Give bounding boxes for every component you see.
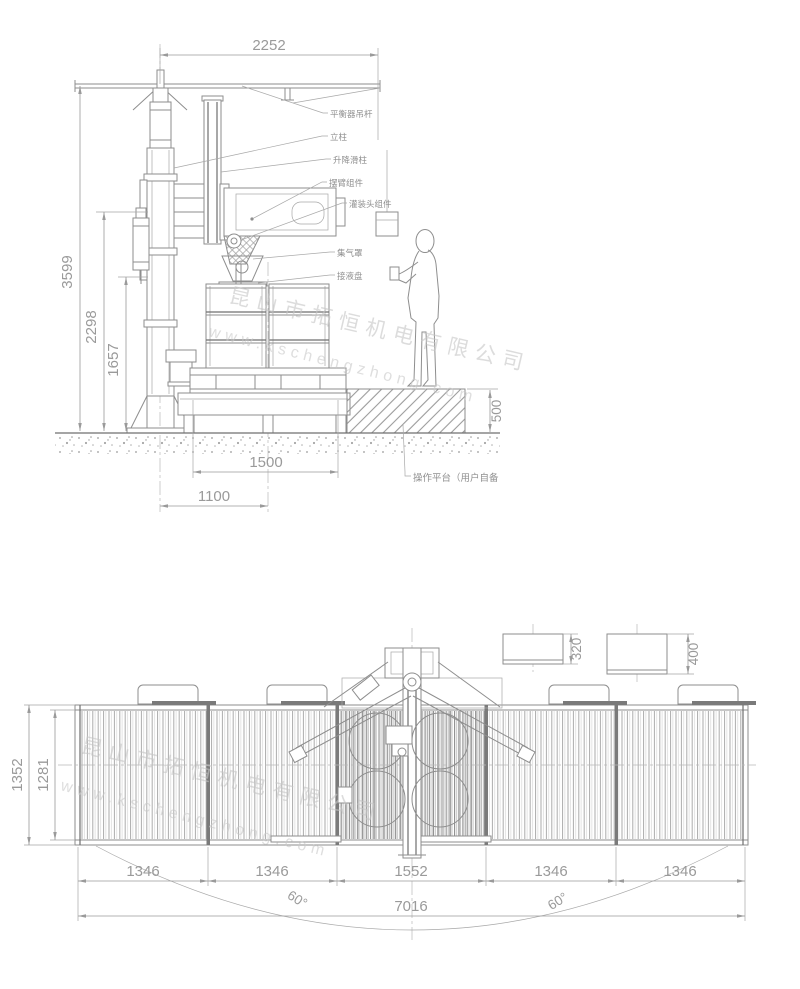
swing-pivot: [403, 673, 421, 691]
label-swing-arm: 摆臂组件: [329, 178, 364, 188]
dim-drum-offset-a: 320: [569, 638, 584, 661]
segment-bar: [615, 705, 619, 845]
page: 2252 3599 2298 1657 1500 1100 500 平衡器吊杆: [0, 0, 800, 989]
base-gusset-left: [131, 396, 147, 428]
label-gas-hood: 集气罩: [337, 248, 363, 258]
arm-attachment: [352, 675, 379, 700]
hanging-component: [376, 150, 398, 236]
dim-pallet-width: 1500: [249, 454, 282, 471]
dim-conveyor-width: 1352: [9, 758, 26, 791]
cad-drawing: 2252 3599 2298 1657 1500 1100 500 平衡器吊杆: [0, 0, 800, 989]
floor-conveyor-frame: [178, 393, 350, 433]
dim-drum-offset-b: 400: [686, 643, 701, 666]
dim-platform-height: 500: [489, 400, 504, 423]
dim-segment-4: 1346: [534, 863, 567, 880]
dim-swing-right: 60°: [545, 889, 570, 913]
label-column: 立柱: [330, 132, 348, 142]
dim-hook-height: 2298: [83, 310, 100, 343]
drum-station-b: 400: [607, 624, 701, 682]
drum-station-a: 320: [503, 624, 584, 672]
balancer-beam: [75, 80, 380, 110]
operator-figure: [390, 230, 439, 390]
dim-segment-3: 1552: [394, 863, 427, 880]
dim-swing-left: 60°: [285, 887, 310, 911]
pallet-stations: [138, 685, 756, 705]
dim-segment-1: 1346: [126, 863, 159, 880]
arm-bracket: [174, 184, 204, 238]
ground-texture: [55, 434, 500, 454]
dim-column-offset: 1100: [198, 488, 230, 505]
label-operator-platform: 操作平台（用户自备: [413, 472, 499, 484]
dim-head-height: 1657: [105, 343, 122, 376]
dim-total-height: 3599: [59, 255, 76, 288]
filling-head-plan: [386, 726, 412, 744]
label-lift-slide: 升降滑柱: [333, 155, 368, 165]
label-balancer-rod: 平衡器吊杆: [330, 109, 373, 119]
balancer-cylinder: [133, 180, 149, 284]
control-pendant: [390, 267, 399, 280]
beam-trolley-hook: [281, 88, 294, 100]
dim-segment-5: 1346: [663, 863, 696, 880]
dim-total-length: 7016: [394, 898, 427, 915]
label-filling-head: 灌装头组件: [349, 199, 392, 209]
dim-beam-span: 2252: [252, 37, 285, 54]
base-plate: [127, 428, 191, 433]
swing-arm-box: [220, 184, 345, 240]
plan-view: 320 400: [9, 624, 756, 940]
label-drip-tray: 接液盘: [337, 271, 363, 281]
dim-segment-2: 1346: [255, 863, 288, 880]
elevation-view: 2252 3599 2298 1657 1500 1100 500 平衡器吊杆: [55, 37, 532, 512]
pallet: [190, 368, 346, 393]
dim-roller-width: 1281: [35, 758, 52, 791]
